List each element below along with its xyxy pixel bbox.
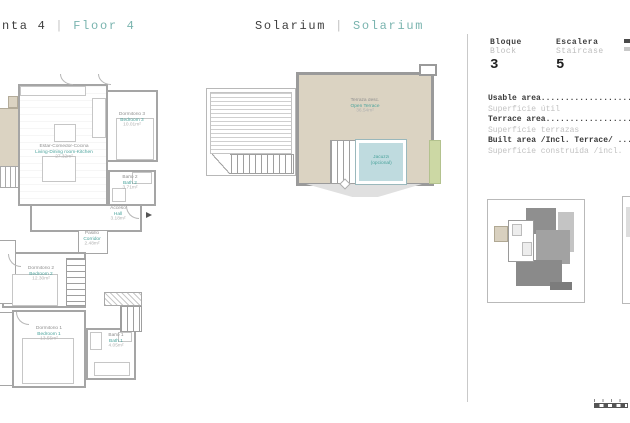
block-label-es: Bloque [490,38,522,47]
room-area: 3.18m² [100,217,135,222]
block-info: Bloque Block 3 [490,38,522,73]
label-bath2: Baño 2 Bath 2 3.71m² [112,175,147,191]
panel-divider [467,34,468,402]
label-terrace: Terraza desc. Open Terrace 36.54m² [325,98,405,114]
label-living: Estar-Comedor-Cocina Living-Dining room-… [24,144,104,160]
built-area-label: Built area /Incl. Terrace/ ... [488,136,630,147]
room-area: 36.54m² [325,109,405,114]
room-area: 2.48m² [74,242,109,247]
floor-title-en: Floor 4 [73,19,135,33]
label-jacuzzi: Jacuzzi (opcional) [370,155,391,166]
entrance-marker-icon [146,212,152,218]
floor-title: nta 4 | Floor 4 [2,19,136,33]
clipped-text-mark [624,39,630,43]
block-label-en: Block [490,47,522,56]
scale-bar [594,403,628,408]
terrace-steps [330,140,356,184]
bed-bedroom1 [22,338,74,384]
usable-area-label-es: Superficie útil [488,105,630,116]
label-hall: Acceso Hall 3.18m² [100,206,135,222]
terrace-step [8,96,18,108]
usable-area-label: Usable area................... [488,94,630,105]
staircase-secondary [120,306,142,332]
solarium-title-en: Solarium [353,19,424,33]
room-area: 13.55m² [24,337,74,342]
staircase-value: 5 [556,57,604,73]
area-summary: Usable area................... Superfici… [488,94,630,157]
terrace-area-label-es: Superficie terrazas [488,126,630,137]
floor-title-es: nta 4 [2,19,47,33]
key-plan-shape [550,282,572,290]
label-corridor: Pasillo Corridor 2.48m² [74,231,109,247]
solarium-title-es: Solarium [255,19,326,33]
planter [429,140,441,184]
staircase-label-es: Escalera [556,38,604,47]
room-area: 4.05m² [100,344,132,349]
key-plan-shape [522,242,532,256]
clipped-text-mark [624,47,630,51]
kitchen-counter [20,86,86,96]
shelf [92,98,106,138]
scale-bar-ticks [594,399,628,402]
key-plan-terrace [494,226,508,242]
plan-sheet: nta 4 | Floor 4 Solarium | Solarium [0,0,630,423]
roof-plane-below [306,184,422,197]
bathtub-bath1 [94,362,130,376]
staircase-label-en: Staircase [556,47,604,56]
label-bedroom2: Dormitorio 2 Bedroom 2 12.30m² [16,266,66,282]
label-bedroom1: Dormitorio 1 Bedroom 1 13.55m² [24,326,74,342]
jacuzzi: Jacuzzi (opcional) [356,140,406,184]
stair-break-line [212,154,230,174]
built-area-label-es: Superficie construida /incl. [488,147,630,158]
staircase-info: Escalera Staircase 5 [556,38,604,73]
table [54,124,76,142]
wardrobe [104,292,142,306]
terrace-area-label: Terrace area.................. [488,115,630,126]
key-plan-shape [536,230,570,264]
room-area: 3.71m² [112,186,147,191]
stair-bulkhead [419,64,437,76]
label-bedroom3: Dormitorio 3 Bedroom 3 10.01m² [111,112,153,128]
room-area: 12.30m² [16,277,66,282]
block-value: 3 [490,57,522,73]
staircase-interior [66,258,86,306]
room-area: 10.01m² [111,123,153,128]
floor-title-separator: | [55,19,64,33]
clipped-column-fragment [624,39,630,51]
clipped-plan-mark [626,207,630,237]
left-balcony-lower [0,312,13,386]
key-plan-shape [512,224,522,236]
solarium-title: Solarium | Solarium [255,19,424,33]
label-bath1: Baño 1 Bath 1 4.05m² [100,333,132,349]
clipped-key-plan-box [622,196,630,304]
room-area: 27.32m² [24,155,104,160]
pergola-slats [210,92,292,154]
key-plan-box [487,199,585,303]
solarium-title-separator: | [335,19,344,33]
jacuzzi-note: (opcional) [370,161,391,166]
